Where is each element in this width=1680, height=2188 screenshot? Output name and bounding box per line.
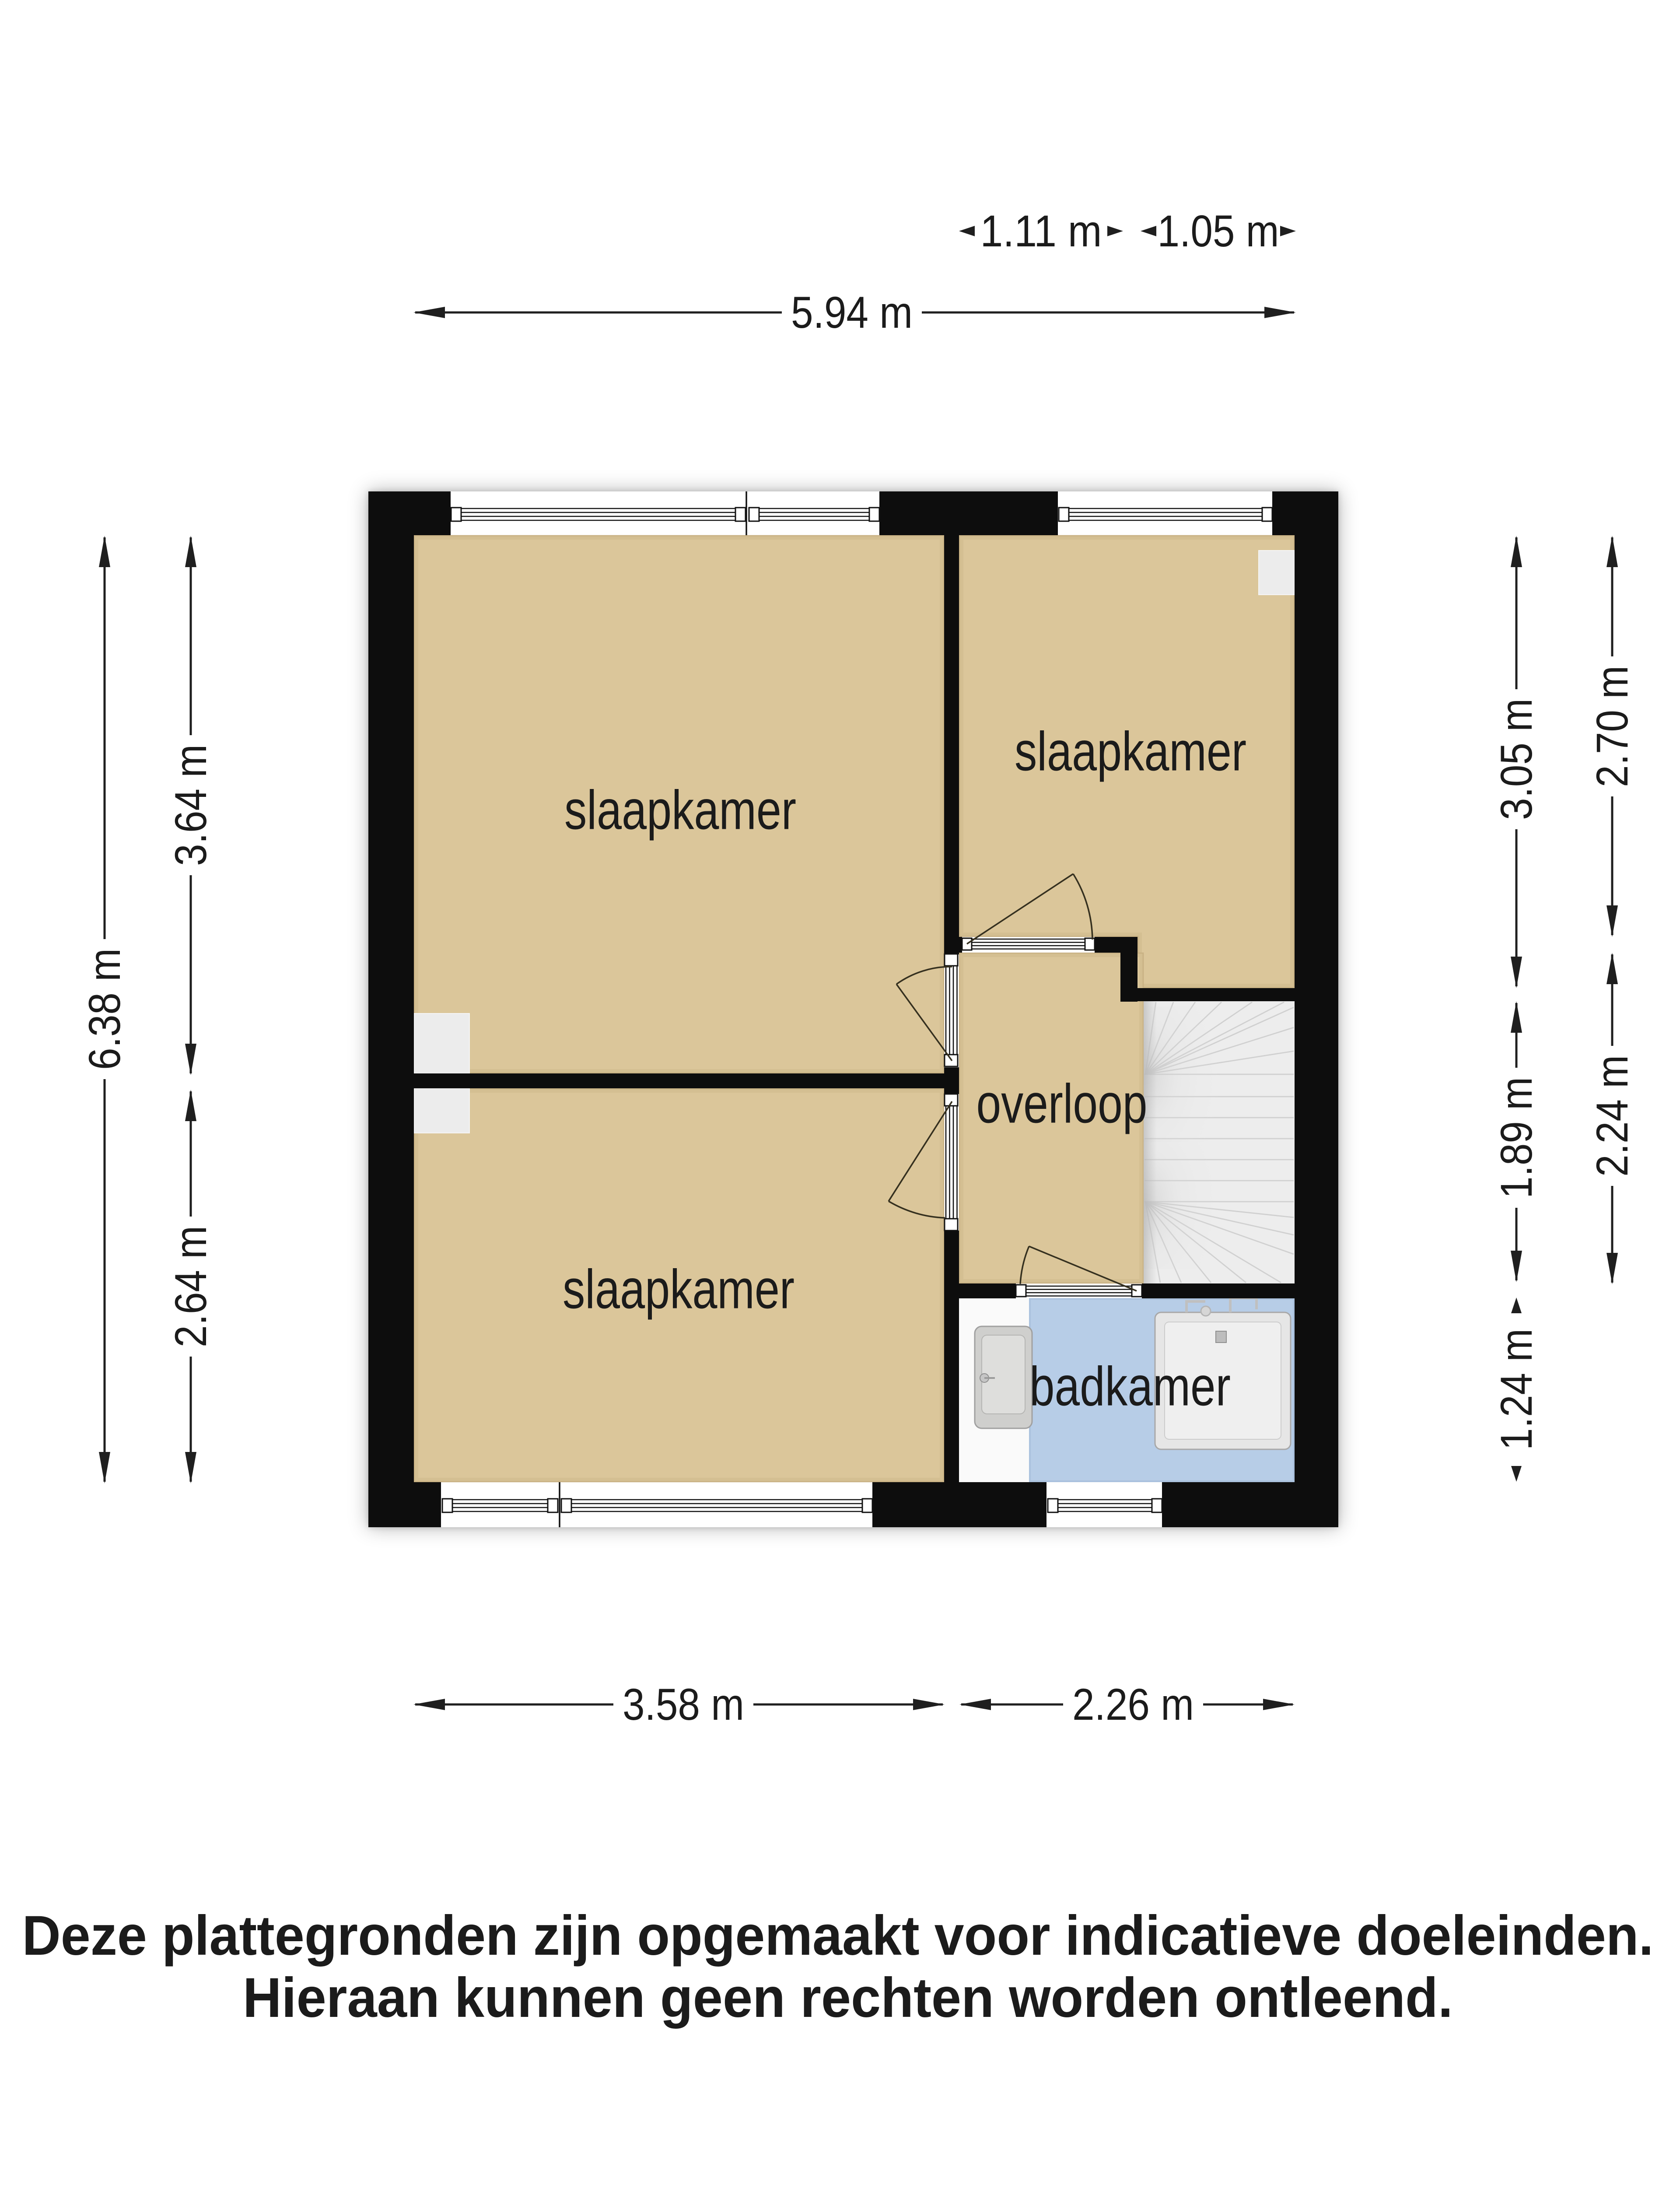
svg-text:3.58 m: 3.58 m <box>623 1680 744 1729</box>
svg-text:slaapkamer: slaapkamer <box>563 1259 794 1320</box>
svg-text:overloop: overloop <box>976 1073 1148 1135</box>
svg-text:2.70 m: 2.70 m <box>1587 666 1637 787</box>
svg-text:3.64 m: 3.64 m <box>166 744 216 866</box>
svg-text:badkamer: badkamer <box>1029 1356 1231 1417</box>
svg-text:1.11 m: 1.11 m <box>980 206 1102 256</box>
svg-text:2.24 m: 2.24 m <box>1587 1055 1637 1177</box>
svg-text:1.05 m: 1.05 m <box>1158 206 1279 256</box>
svg-text:Deze plattegronden zijn opgema: Deze plattegronden zijn opgemaakt voor i… <box>22 1904 1654 1967</box>
svg-text:2.26 m: 2.26 m <box>1072 1680 1194 1729</box>
svg-text:slaapkamer: slaapkamer <box>564 779 796 841</box>
svg-text:slaapkamer: slaapkamer <box>1015 721 1246 782</box>
svg-text:Hieraan kunnen geen rechten wo: Hieraan kunnen geen rechten worden ontle… <box>243 1967 1453 2029</box>
svg-text:1.24 m: 1.24 m <box>1491 1329 1541 1450</box>
svg-text:2.64 m: 2.64 m <box>166 1226 216 1347</box>
svg-text:3.05 m: 3.05 m <box>1491 698 1541 820</box>
svg-text:6.38 m: 6.38 m <box>80 948 129 1070</box>
svg-text:1.89 m: 1.89 m <box>1491 1077 1541 1199</box>
svg-text:5.94 m: 5.94 m <box>791 288 913 337</box>
